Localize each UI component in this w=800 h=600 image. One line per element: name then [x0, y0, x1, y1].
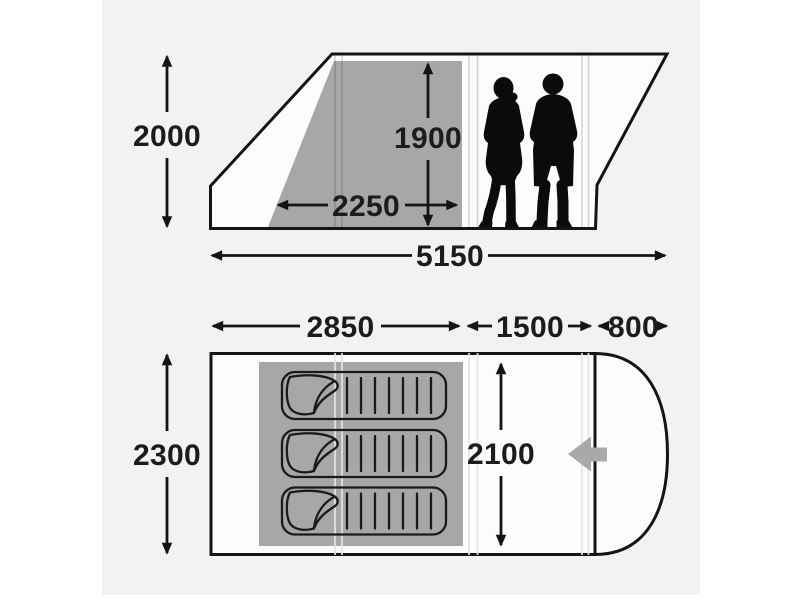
plan-living-length-label: 1500: [496, 311, 564, 344]
tent-dimension-diagram: 2000 1900 2250 5150: [0, 0, 800, 600]
plan-overall-width-label: 2300: [133, 439, 201, 472]
bedroom-length-side-label: 2250: [332, 190, 400, 223]
plan-bedroom-length-label: 2850: [307, 311, 375, 344]
plan-canopy-depth-label: 800: [608, 311, 659, 344]
plan-interior-width-label: 2100: [467, 438, 535, 471]
overall-length-label: 5150: [416, 240, 484, 273]
overall-height-label: 2000: [133, 120, 201, 153]
diagram-page: 2000 1900 2250 5150: [0, 0, 800, 600]
dim-plan-canopy-depth: 800: [599, 311, 667, 344]
interior-height-label: 1900: [394, 122, 462, 155]
